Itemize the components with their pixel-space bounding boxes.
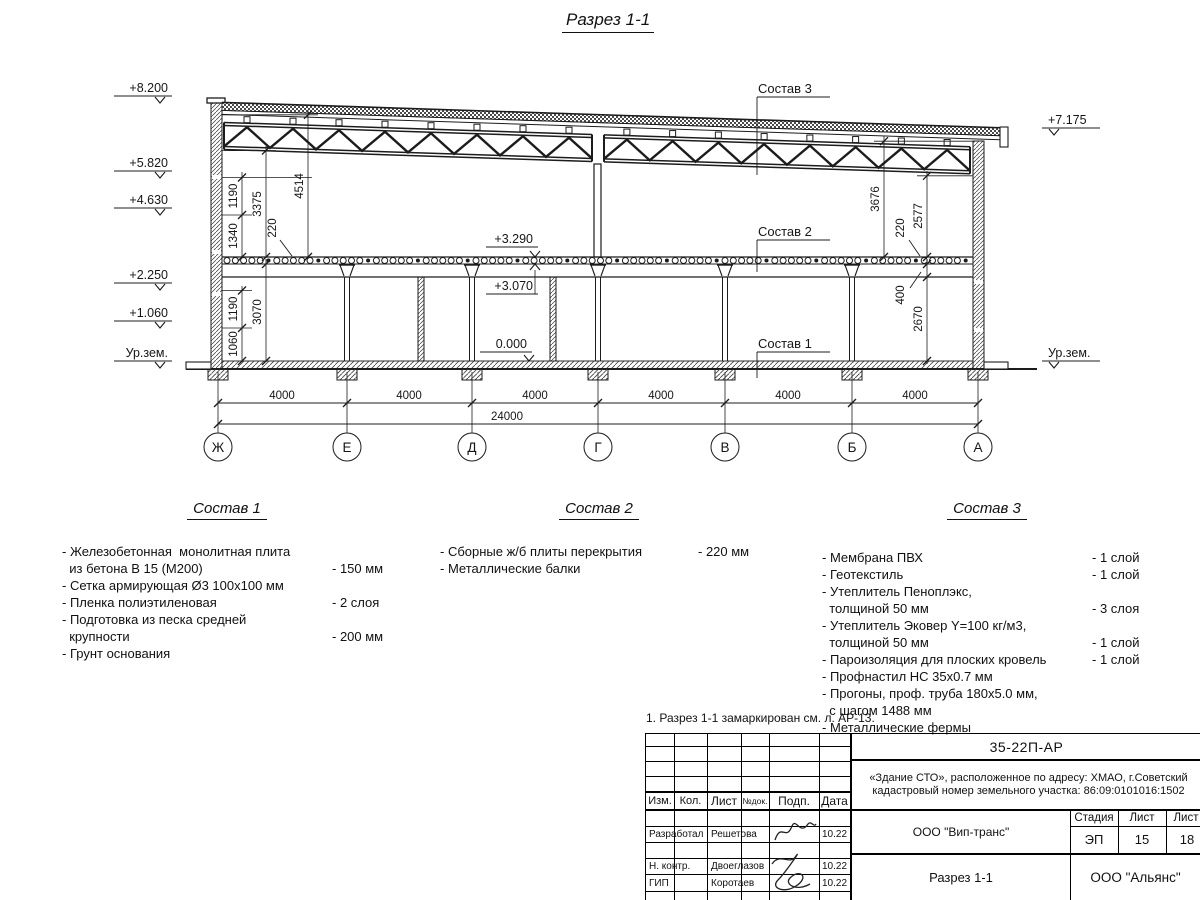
dimensions-bottom: 4000 4000 4000 4000 4000 4000 24000 [269, 390, 928, 423]
axis-label: Е [342, 440, 351, 455]
tb-doc-title: Разрез 1-1 [852, 854, 1070, 900]
tb-header-podp: Подп. [769, 792, 819, 809]
composition-title: Состав 1 [62, 500, 392, 517]
dim-label: 3375 [252, 191, 264, 217]
dim-label: 400 [895, 285, 907, 304]
dim-label: 1340 [228, 223, 240, 249]
list-item: - Геотекстиль- 1 слой [822, 566, 1152, 583]
tb-date: 10.22 [819, 859, 850, 874]
tb-header-data: Дата [819, 792, 850, 809]
elevation-label: +5.820 [129, 156, 168, 170]
tb-doc-number: 35-22П-АР [852, 735, 1200, 759]
section-linework [114, 96, 1100, 461]
elevation-label: +3.070 [494, 279, 533, 293]
tb-name: Решетова [708, 827, 772, 842]
tb-role: Н. контр. [646, 859, 710, 874]
dim-label: 4000 [775, 390, 801, 402]
elevation-label: +1.060 [129, 306, 168, 320]
list-item: - Мембрана ПВХ- 1 слой [822, 549, 1152, 566]
list-item: - Пленка полиэтиленовая- 2 слоя [62, 594, 392, 611]
elevation-label: +4.630 [129, 193, 168, 207]
elevation-label: +7.175 [1048, 113, 1087, 127]
list-item: - Подготовка из песка средней крупности-… [62, 611, 392, 645]
tb-org-right: ООО "Альянс" [1070, 854, 1200, 900]
elevation-marks-inner: +3.290 +3.070 0.000 [494, 232, 533, 351]
list-item: - Сборные ж/б плиты перекрытия- 220 мм [440, 543, 758, 560]
elevation-label: +3.290 [494, 232, 533, 246]
dim-label: 1190 [228, 184, 240, 209]
dim-label: 4000 [269, 390, 295, 402]
tb-name: Коротаев [708, 875, 772, 891]
axis-label: Ж [212, 440, 225, 455]
elevation-label: +2.250 [129, 268, 168, 282]
tb-header-sheet: Лист [1118, 810, 1166, 826]
dim-label: 4000 [648, 390, 674, 402]
list-item: - Пароизоляция для плоских кровель- 1 сл… [822, 651, 1152, 668]
axis-bubbles: Ж Е Д Г В Б А [212, 440, 983, 455]
elevation-label: 0.000 [496, 337, 527, 351]
composition-list-1: Состав 1 - Железобетонная монолитная пли… [62, 500, 392, 662]
list-item: - Профнастил НС 35х0.7 мм [822, 668, 1152, 685]
axis-label: Д [467, 440, 476, 455]
dim-label: 2577 [913, 203, 925, 229]
elevation-label: +8.200 [129, 81, 168, 95]
tb-role: Разработал [646, 827, 710, 842]
dim-label: 2670 [913, 306, 925, 332]
axis-label: Г [594, 440, 602, 455]
tb-header-sheets: Лист [1166, 810, 1200, 826]
tb-header-izm: Изм. [646, 792, 674, 809]
elevation-marks-left: +8.200 +5.820 +4.630 +2.250 +1.060 Ур.зе… [126, 81, 168, 360]
list-item: - Железобетонная монолитная плита из бет… [62, 543, 392, 577]
axis-label: Б [848, 440, 857, 455]
dim-label: 4000 [396, 390, 422, 402]
dim-label: 4000 [902, 390, 928, 402]
elevation-marks-right: +7.175 Ур.зем. [1048, 113, 1090, 360]
axis-label: В [720, 440, 729, 455]
tb-stage-value: ЭП [1070, 827, 1118, 852]
tb-sheet-value: 15 [1118, 827, 1166, 852]
composition-title: Состав 2 [440, 500, 758, 517]
dimensions-left: 1190 3375 4514 1340 220 1190 1060 3070 [228, 173, 306, 357]
sheet-note: 1. Разрез 1-1 замаркирован см. л. АР-13. [646, 711, 875, 725]
callout-label: Состав 2 [758, 224, 812, 239]
list-item: - Утеплитель Эковер Y=100 кг/м3, толщино… [822, 617, 1152, 651]
tb-header-list: Лист [707, 792, 741, 809]
tb-header-ndok: №док. [741, 792, 769, 809]
signature [772, 818, 818, 846]
composition-title: Состав 3 [822, 500, 1152, 517]
dim-label: 3070 [252, 299, 264, 325]
dim-label: 1060 [228, 331, 240, 357]
dim-label: 1190 [228, 297, 240, 322]
ground-level-label: Ур.зем. [1048, 346, 1090, 360]
tb-header-kol: Кол. [674, 792, 707, 809]
tb-org-middle: ООО "Вип-транс" [852, 811, 1070, 852]
drawing-sheet: Разрез 1-1 +8.200 +5.820 +4.630 [0, 0, 1200, 900]
signature [766, 850, 822, 898]
section-drawing: +8.200 +5.820 +4.630 +2.250 +1.060 Ур.зе… [0, 0, 1200, 475]
dim-label: 220 [267, 218, 279, 237]
dim-label: 4000 [522, 390, 548, 402]
tb-project-name: «Здание СТО», расположенное по адресу: Х… [856, 761, 1200, 808]
list-item: - Металлические балки [440, 560, 758, 577]
tb-date: 10.22 [819, 875, 850, 891]
title-block: Изм. Кол. Лист №док. Подп. Дата Разработ… [645, 733, 1200, 900]
callout-label: Состав 3 [758, 81, 812, 96]
dim-total-label: 24000 [491, 411, 523, 423]
tb-name: Двоеглазов [708, 859, 772, 874]
list-item: - Грунт основания [62, 645, 392, 662]
axis-label: А [973, 440, 982, 455]
tb-role: ГИП [646, 875, 710, 891]
composition-list-3: Состав 3 - Мембрана ПВХ- 1 слой - Геотек… [822, 500, 1152, 736]
tb-date: 10.22 [819, 827, 850, 842]
tb-header-stage: Стадия [1070, 810, 1118, 826]
tb-sheets-value: 18 [1166, 827, 1200, 852]
list-item: - Сетка армирующая Ø3 100х100 мм [62, 577, 392, 594]
ground-level-label: Ур.зем. [126, 346, 168, 360]
dim-label: 4514 [294, 173, 306, 199]
composition-list-2: Состав 2 - Сборные ж/б плиты перекрытия-… [440, 500, 758, 577]
dim-label: 3676 [870, 186, 882, 212]
list-item: - Утеплитель Пеноплэкс, толщиной 50 мм- … [822, 583, 1152, 617]
dim-label: 220 [895, 218, 907, 237]
callout-label: Состав 1 [758, 336, 812, 351]
